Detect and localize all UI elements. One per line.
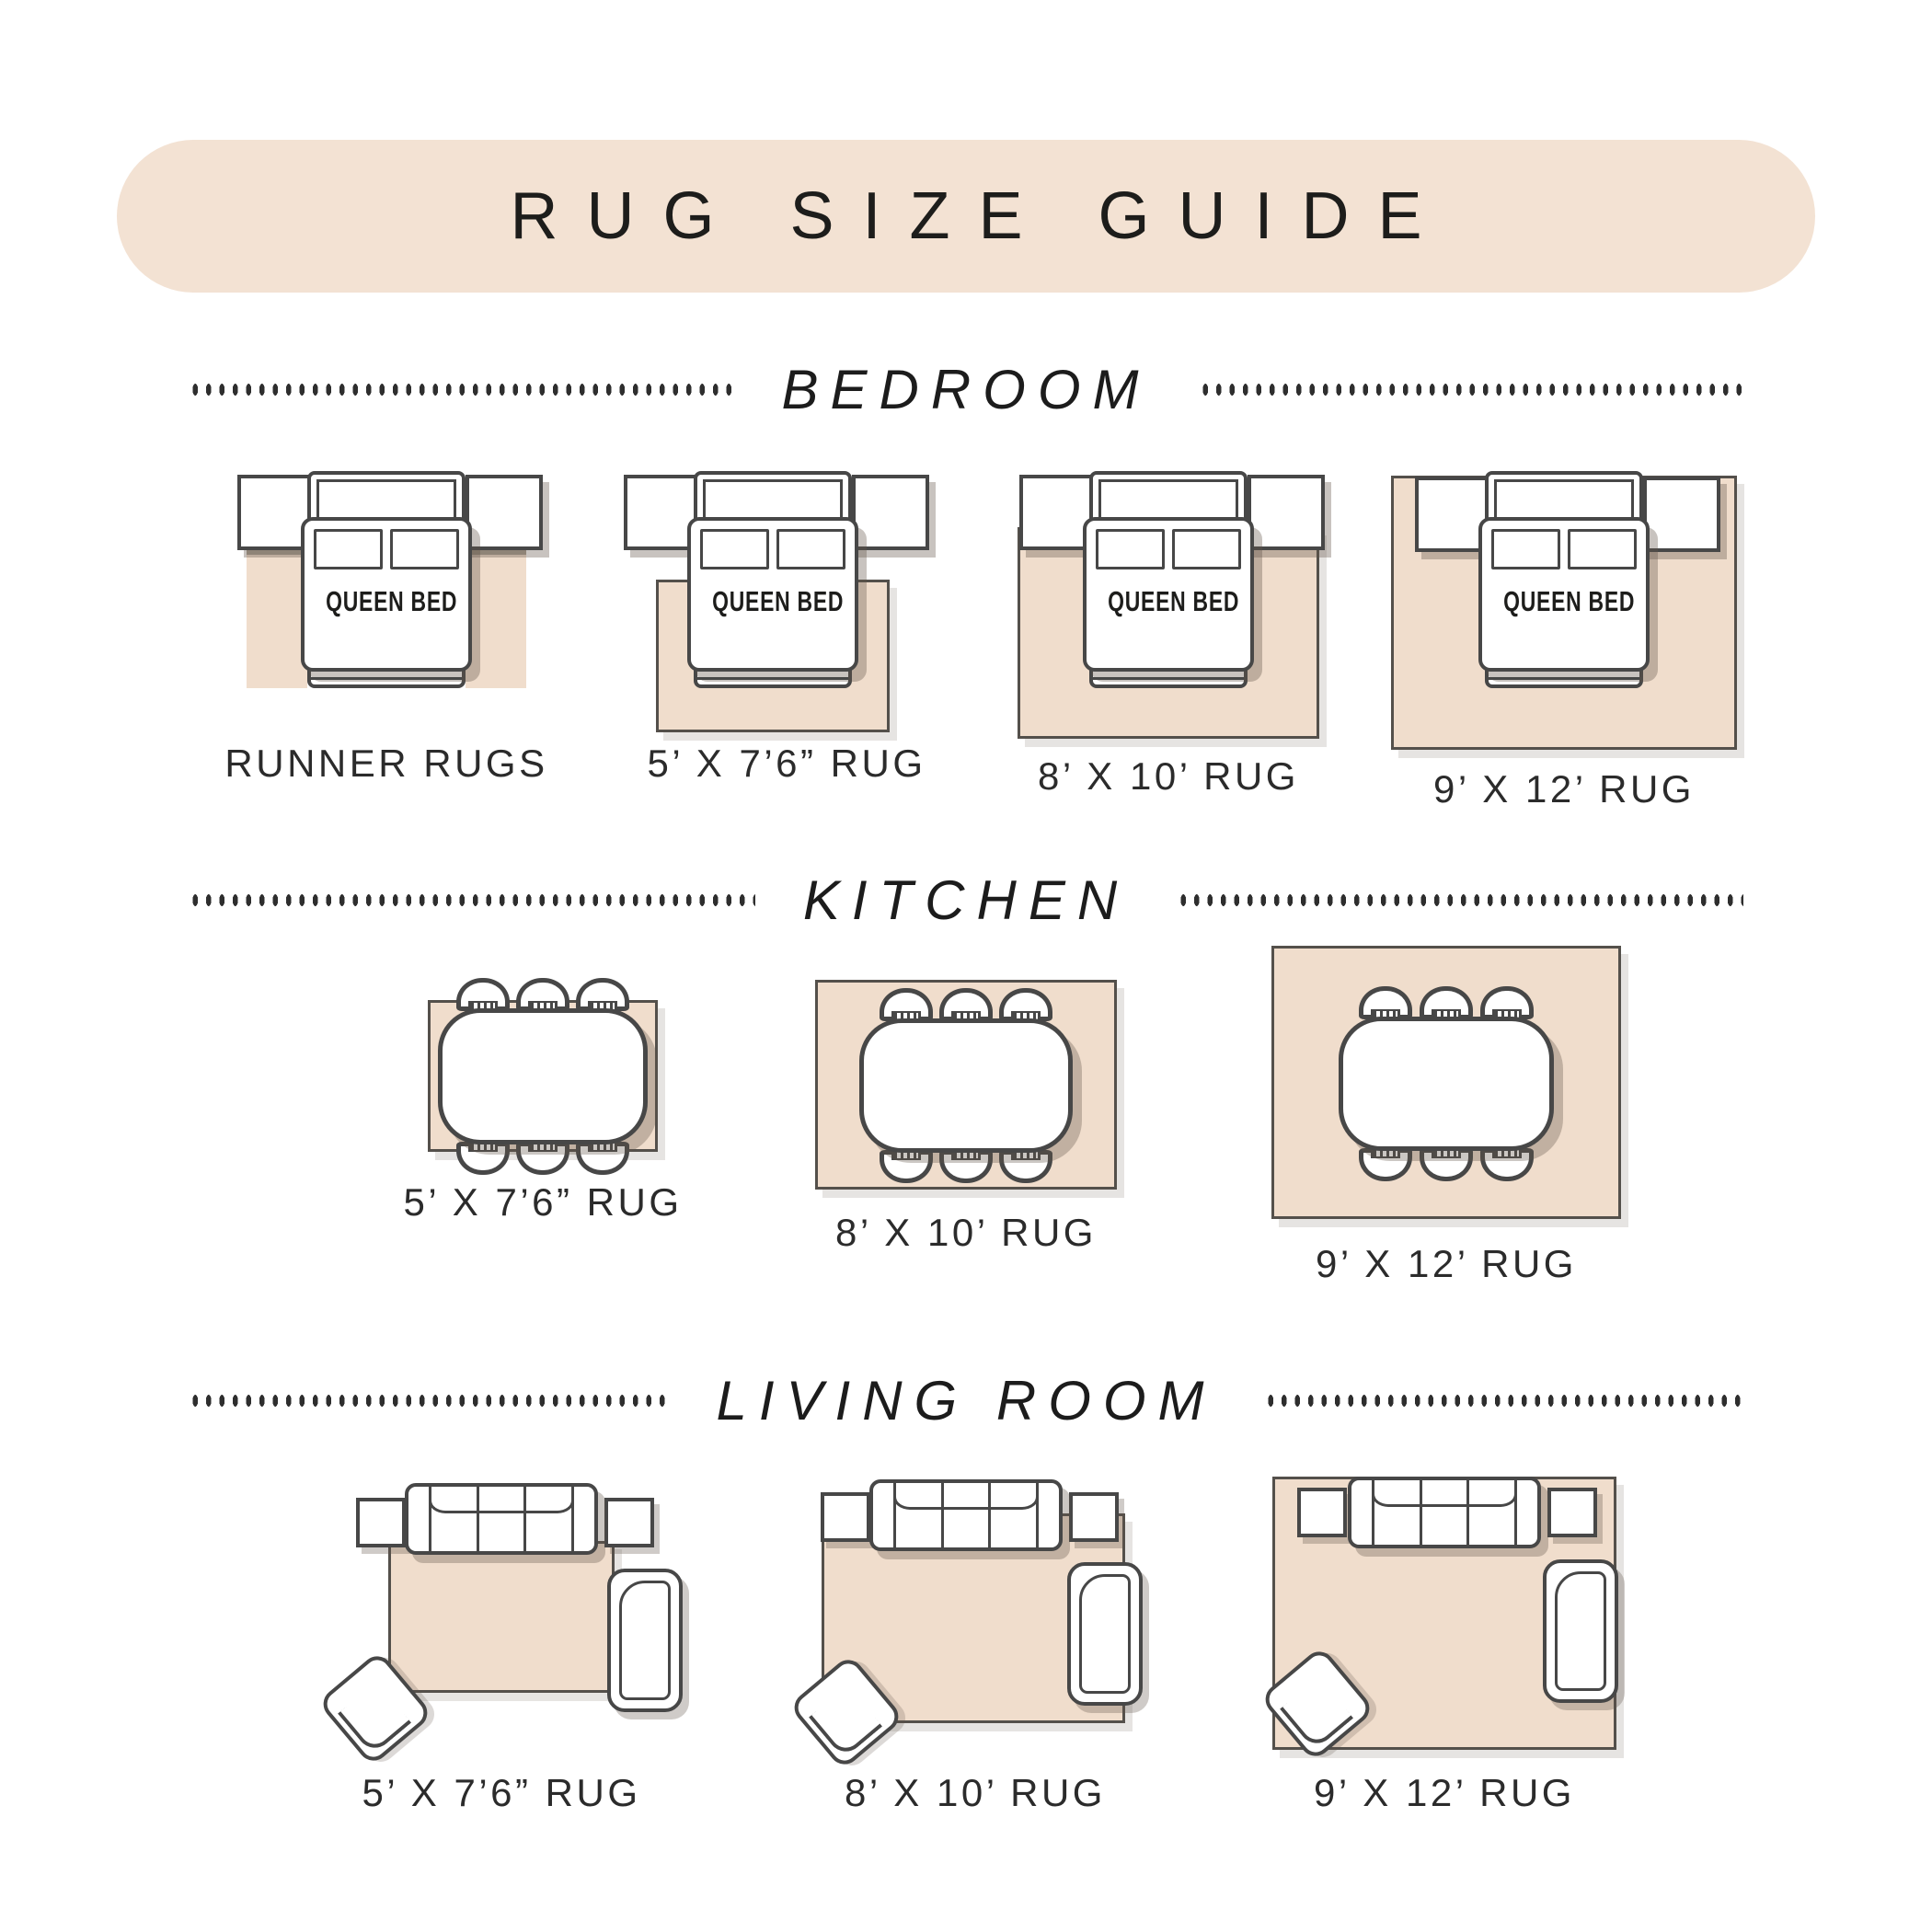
scene-label: 8’ X 10’ RUG [835, 1211, 1097, 1255]
sofa-back [429, 1487, 574, 1513]
queen-bed-label: QUEEN BED [1503, 585, 1625, 618]
pillow [776, 529, 845, 569]
queen-bed: QUEEN BED [1485, 471, 1643, 688]
footboard-line [697, 677, 848, 680]
bedroom-heading: BEDROOM [781, 358, 1150, 421]
divider-dots-left [189, 1395, 668, 1407]
scene-label: 5’ X 7’6” RUG [362, 1771, 640, 1815]
section-heading-living-room: LIVING ROOM [189, 1368, 1743, 1432]
divider-dots-right [1199, 384, 1743, 396]
queen-bed: QUEEN BED [694, 471, 852, 688]
side-table-left [1297, 1488, 1347, 1537]
section-heading-bedroom: BEDROOM [189, 357, 1743, 421]
pillow [314, 529, 383, 569]
headboard [1098, 479, 1238, 520]
pillow [1096, 529, 1165, 569]
scene-label: 9’ X 12’ RUG [1433, 767, 1695, 811]
divider-dots-right [1177, 894, 1743, 906]
scene-label: 5’ X 7’6” RUG [647, 742, 926, 786]
footboard-line [311, 677, 462, 680]
headboard [316, 479, 456, 520]
area-rug-5x76 [388, 1541, 615, 1693]
sofa [405, 1483, 598, 1555]
side-table-left [821, 1492, 870, 1542]
sofa [1348, 1477, 1541, 1548]
scene-label: 8’ X 10’ RUG [845, 1771, 1106, 1815]
queen-bed: QUEEN BED [1089, 471, 1248, 688]
pillow [700, 529, 769, 569]
sofa [869, 1479, 1063, 1551]
dining-table [438, 1008, 648, 1144]
queen-bed-label: QUEEN BED [326, 585, 447, 618]
page-title: RUG SIZE GUIDE [481, 178, 1450, 254]
divider-dots-left [189, 894, 755, 906]
sofa-back [1372, 1480, 1517, 1507]
pillow [1568, 529, 1637, 569]
pillows [1096, 529, 1241, 569]
lounge-chair-seat [619, 1581, 671, 1700]
lounge-chair [607, 1569, 683, 1712]
side-table-left [356, 1498, 406, 1547]
side-table-right [604, 1498, 654, 1547]
mattress: QUEEN BED [687, 517, 858, 672]
kitchen-heading: KITCHEN [803, 868, 1129, 932]
nightstand-right [466, 475, 543, 550]
headboard [703, 479, 843, 520]
nightstand-right [1248, 475, 1325, 550]
side-table-right [1069, 1492, 1119, 1542]
pillow [1491, 529, 1560, 569]
lounge-chair-seat [1079, 1574, 1131, 1694]
queen-bed-label: QUEEN BED [1108, 585, 1229, 618]
title-banner: RUG SIZE GUIDE [117, 140, 1815, 293]
dining-table [859, 1018, 1073, 1153]
pillow [1172, 529, 1241, 569]
footboard-line [1489, 677, 1639, 680]
footboard-line [1093, 677, 1244, 680]
headboard [1494, 479, 1634, 520]
pillows [314, 529, 459, 569]
nightstand-right [852, 475, 929, 550]
dining-table [1339, 1017, 1554, 1151]
lounge-chair [1543, 1559, 1618, 1703]
mattress: QUEEN BED [1083, 517, 1254, 672]
lounge-chair [1067, 1562, 1143, 1706]
scene-label: 9’ X 12’ RUG [1314, 1771, 1575, 1815]
scene-label: 9’ X 12’ RUG [1316, 1242, 1577, 1286]
queen-bed: QUEEN BED [307, 471, 466, 688]
side-table-right [1547, 1488, 1597, 1537]
rug-size-guide-infographic: RUG SIZE GUIDE BEDROOM QUEEN BED RUNNER … [0, 0, 1932, 1932]
scene-label: 8’ X 10’ RUG [1038, 754, 1299, 799]
pillows [1491, 529, 1637, 569]
mattress: QUEEN BED [1478, 517, 1650, 672]
sofa-back [893, 1483, 1039, 1510]
section-heading-kitchen: KITCHEN [189, 868, 1743, 932]
living-room-heading: LIVING ROOM [716, 1369, 1215, 1432]
lounge-chair-seat [1555, 1571, 1606, 1691]
scene-label: RUNNER RUGS [224, 742, 547, 786]
divider-dots-left [189, 384, 733, 396]
pillows [700, 529, 845, 569]
pillow [390, 529, 459, 569]
divider-dots-right [1264, 1395, 1743, 1407]
queen-bed-label: QUEEN BED [712, 585, 834, 618]
nightstand-right [1643, 477, 1720, 552]
mattress: QUEEN BED [301, 517, 472, 672]
scene-label: 5’ X 7’6” RUG [403, 1180, 682, 1225]
